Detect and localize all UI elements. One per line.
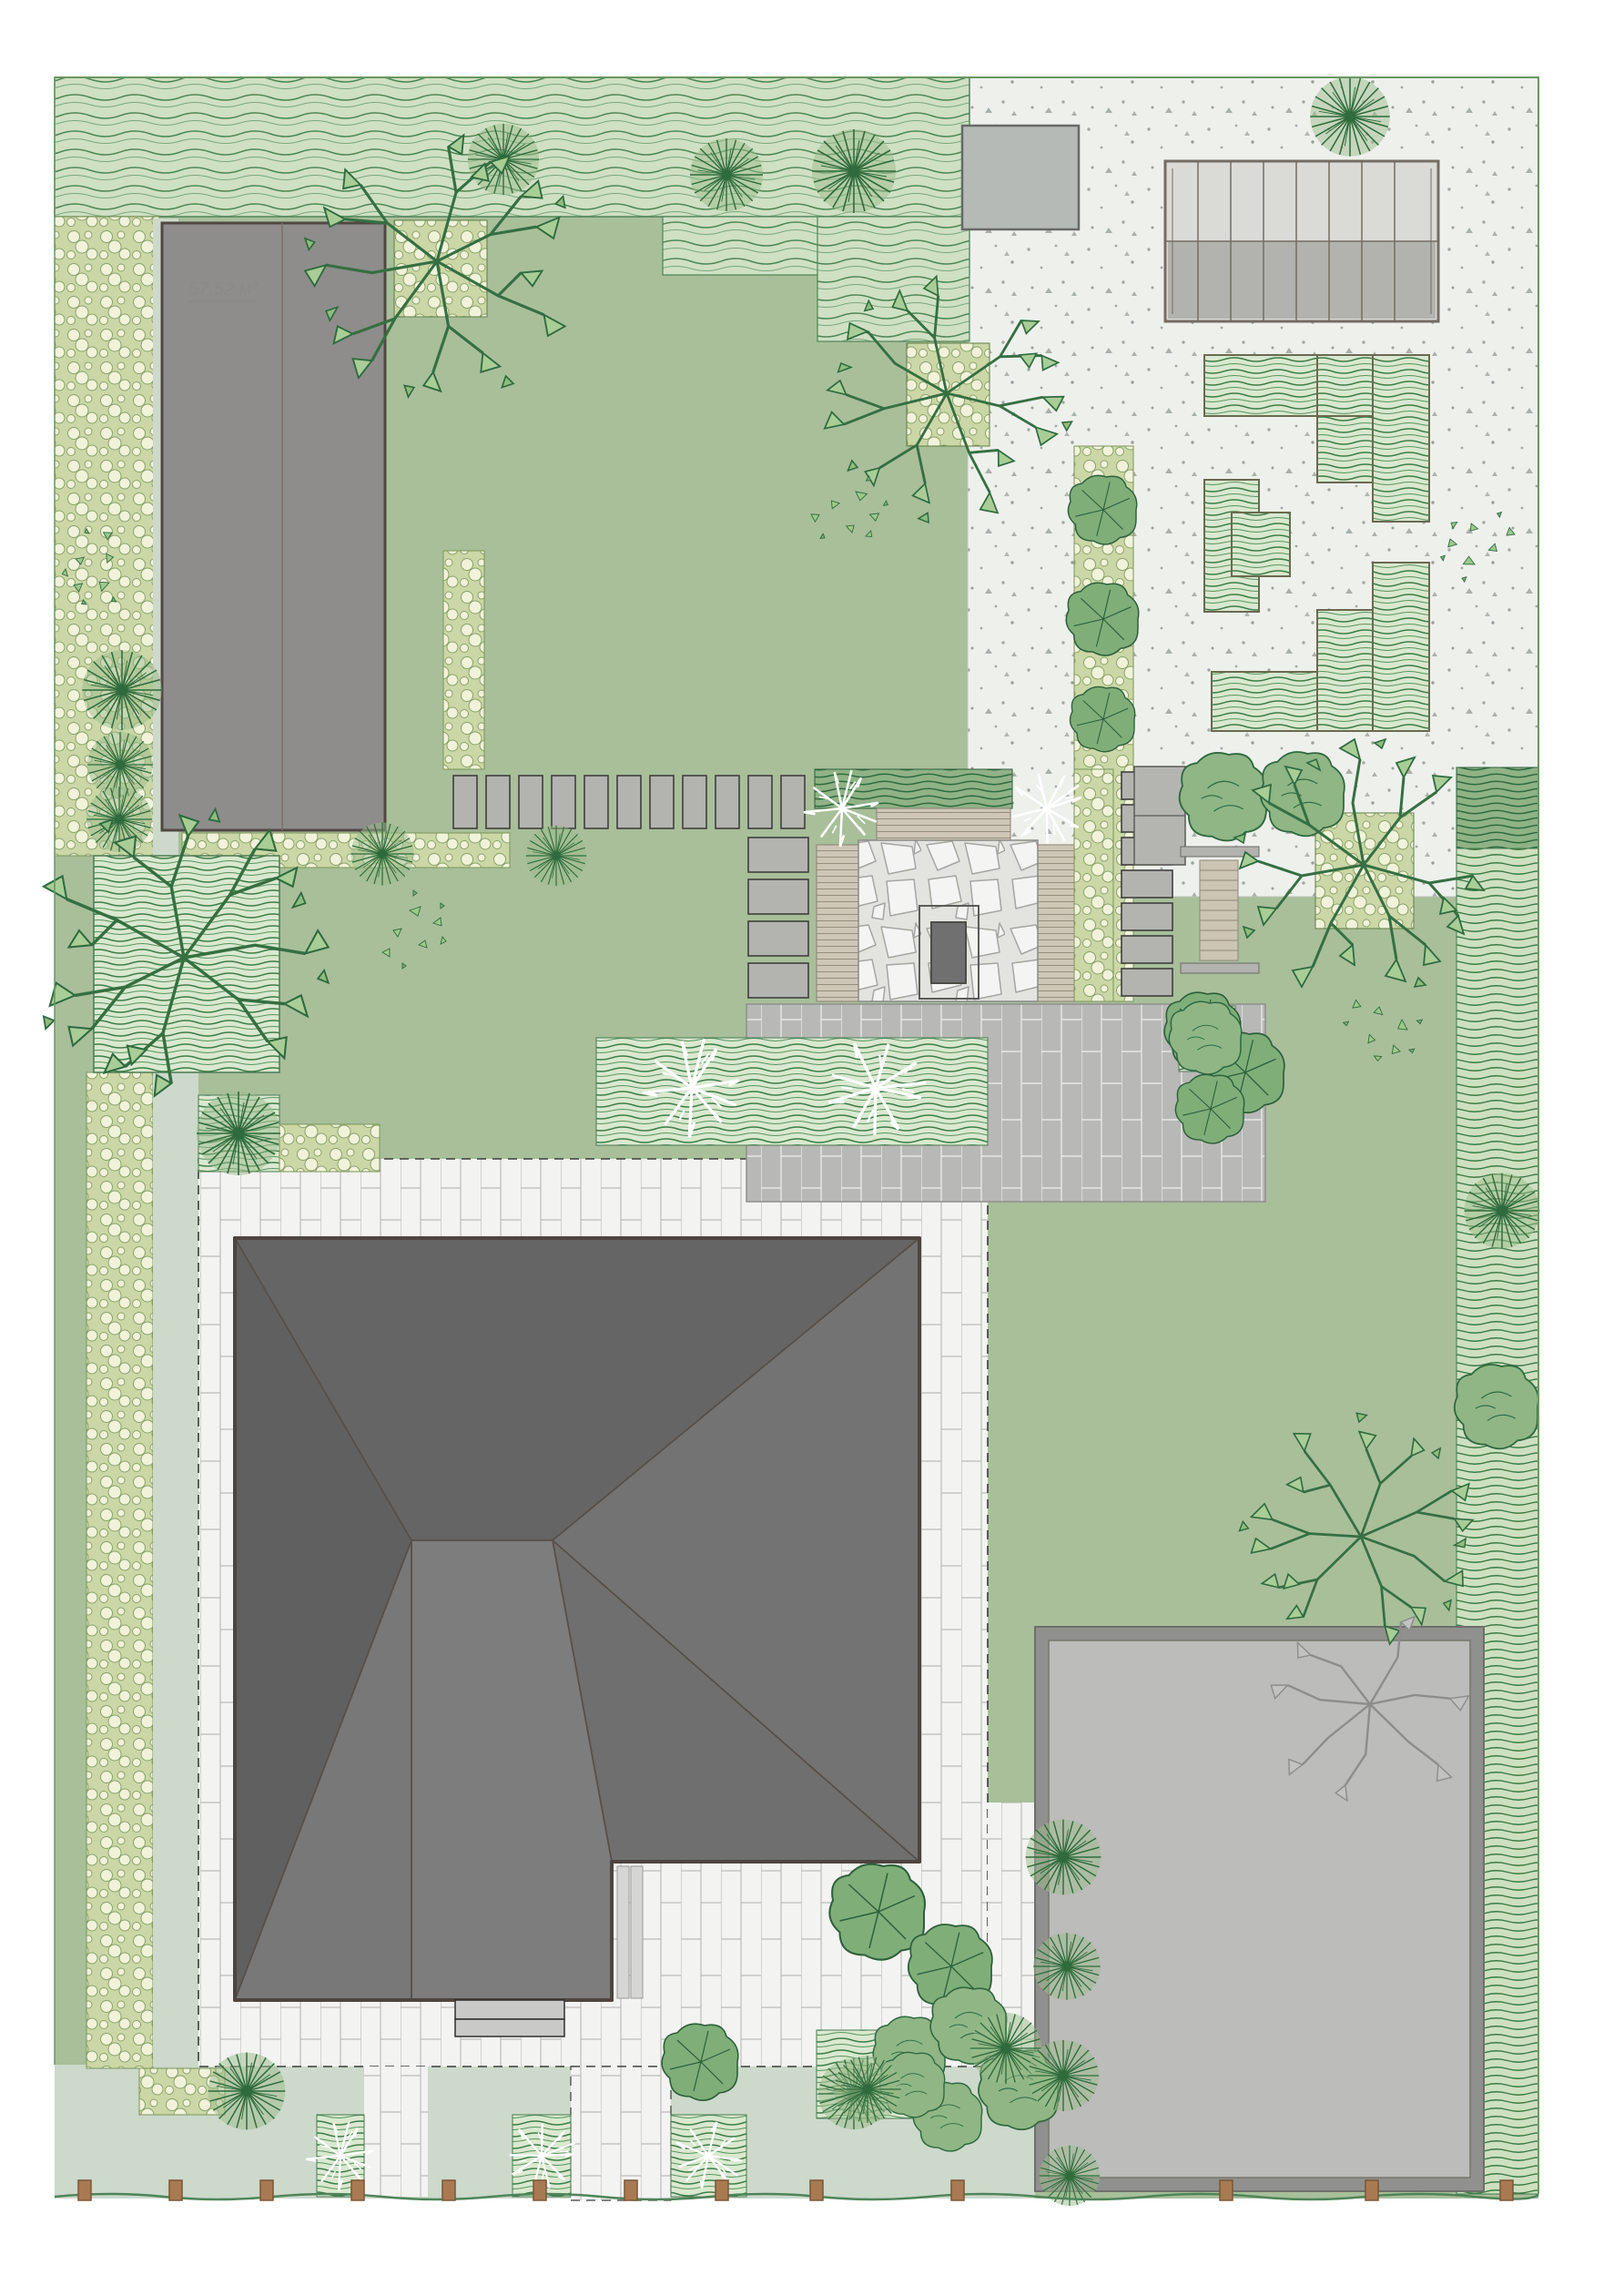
tree-radial [834,2056,901,2123]
entry-step [455,2000,564,2019]
veg-bed [1317,610,1373,731]
tree-radial [82,650,161,729]
utility-pad [962,126,1079,229]
stepping-stone [748,776,772,828]
stepping-stone [1122,870,1172,898]
fence-post [951,2180,964,2200]
fire-pit [919,906,979,999]
entry-step [455,2019,564,2036]
fence-post [1500,2180,1513,2200]
circle-strip-patio-right [1074,769,1113,1001]
deck-right [1038,845,1074,1001]
stepping-stone [552,776,575,828]
stepping-stone [453,776,477,828]
shrub-palm [1071,686,1135,751]
tree-radial [1033,1933,1101,2000]
fence-post [810,2180,823,2200]
slab [748,963,808,998]
fence-post [716,2180,728,2200]
shrub-palm [1068,475,1136,544]
fence-post [1365,2180,1378,2200]
stepping-stone [486,776,510,828]
shrub-band-corner [817,217,969,341]
veg-bed [1373,355,1429,522]
tree-radial [1310,76,1389,156]
tree-radial [351,823,414,886]
shrub-cloud [1169,1001,1242,1074]
veg-bed [1317,355,1373,416]
stepping-stone [781,776,805,828]
fence-post [1220,2180,1233,2200]
fence-post [624,2180,637,2200]
stepping-stone [650,776,674,828]
parking-pad [1035,1627,1484,2191]
shrub-palm [662,2024,738,2100]
fence-post [169,2180,182,2200]
veg-bed [1232,513,1290,576]
tree-radial [812,129,896,213]
stepping-stone [1122,969,1172,996]
shrub-palm [1175,1074,1243,1143]
circle-band-lower [279,1124,380,1172]
veg-bed [1204,355,1317,416]
slab [748,838,808,872]
veg-bed [1212,672,1317,731]
tree-radial [1028,2040,1099,2111]
shrub-palm [1066,583,1139,655]
front-path [571,2067,671,2200]
veg-bed [1373,563,1429,731]
fire-pit-insert [931,922,966,983]
bench-bar [1181,963,1259,973]
stepping-stone-row [453,776,805,828]
tree-radial [690,138,763,211]
shrub-cloud [1261,752,1345,836]
stepping-stone [519,776,543,828]
slab [748,921,808,956]
tree-radial [1026,1820,1101,1895]
veg-bed [1317,416,1373,482]
stepping-stone [617,776,641,828]
site-plan-drawing: 57,52 м² [0,0,1624,2285]
stepping-stone [716,776,739,828]
deck-top [877,808,1010,840]
shrub-cloud [1455,1365,1538,1448]
slab [748,879,808,914]
porch-strip [631,1866,643,1998]
landscape-plan-page: 57,52 м² [0,0,1624,2285]
tree-radial [526,826,586,886]
fence-post [260,2180,273,2200]
tree-radial [208,2053,286,2130]
greenhouse [1165,161,1438,321]
deck-left [817,845,858,1001]
garden-bench [1134,767,1185,865]
fence-post [78,2180,91,2200]
tree-radial [1465,1173,1540,1249]
hedge-block-topright [1457,767,1538,849]
porch-strip [617,1866,629,1998]
circle-strip-lawn [443,551,484,769]
front-path-secondary [364,2067,428,2197]
side-path-left-lower [153,1072,198,2067]
garage-area-label: 57,52 м² [188,279,259,300]
garage-building: 57,52 м² [162,223,385,830]
tree-radial [197,1092,280,1175]
fence-post [533,2180,546,2200]
shrub-cloud [1180,753,1267,841]
fence-post [351,2180,364,2200]
planting-strip-left-lower [86,1072,153,2068]
stepping-stone [1122,936,1172,963]
stepping-stone [1122,903,1172,930]
stepping-stone [683,776,706,828]
fence-post [442,2180,455,2200]
stepping-stone [584,776,608,828]
